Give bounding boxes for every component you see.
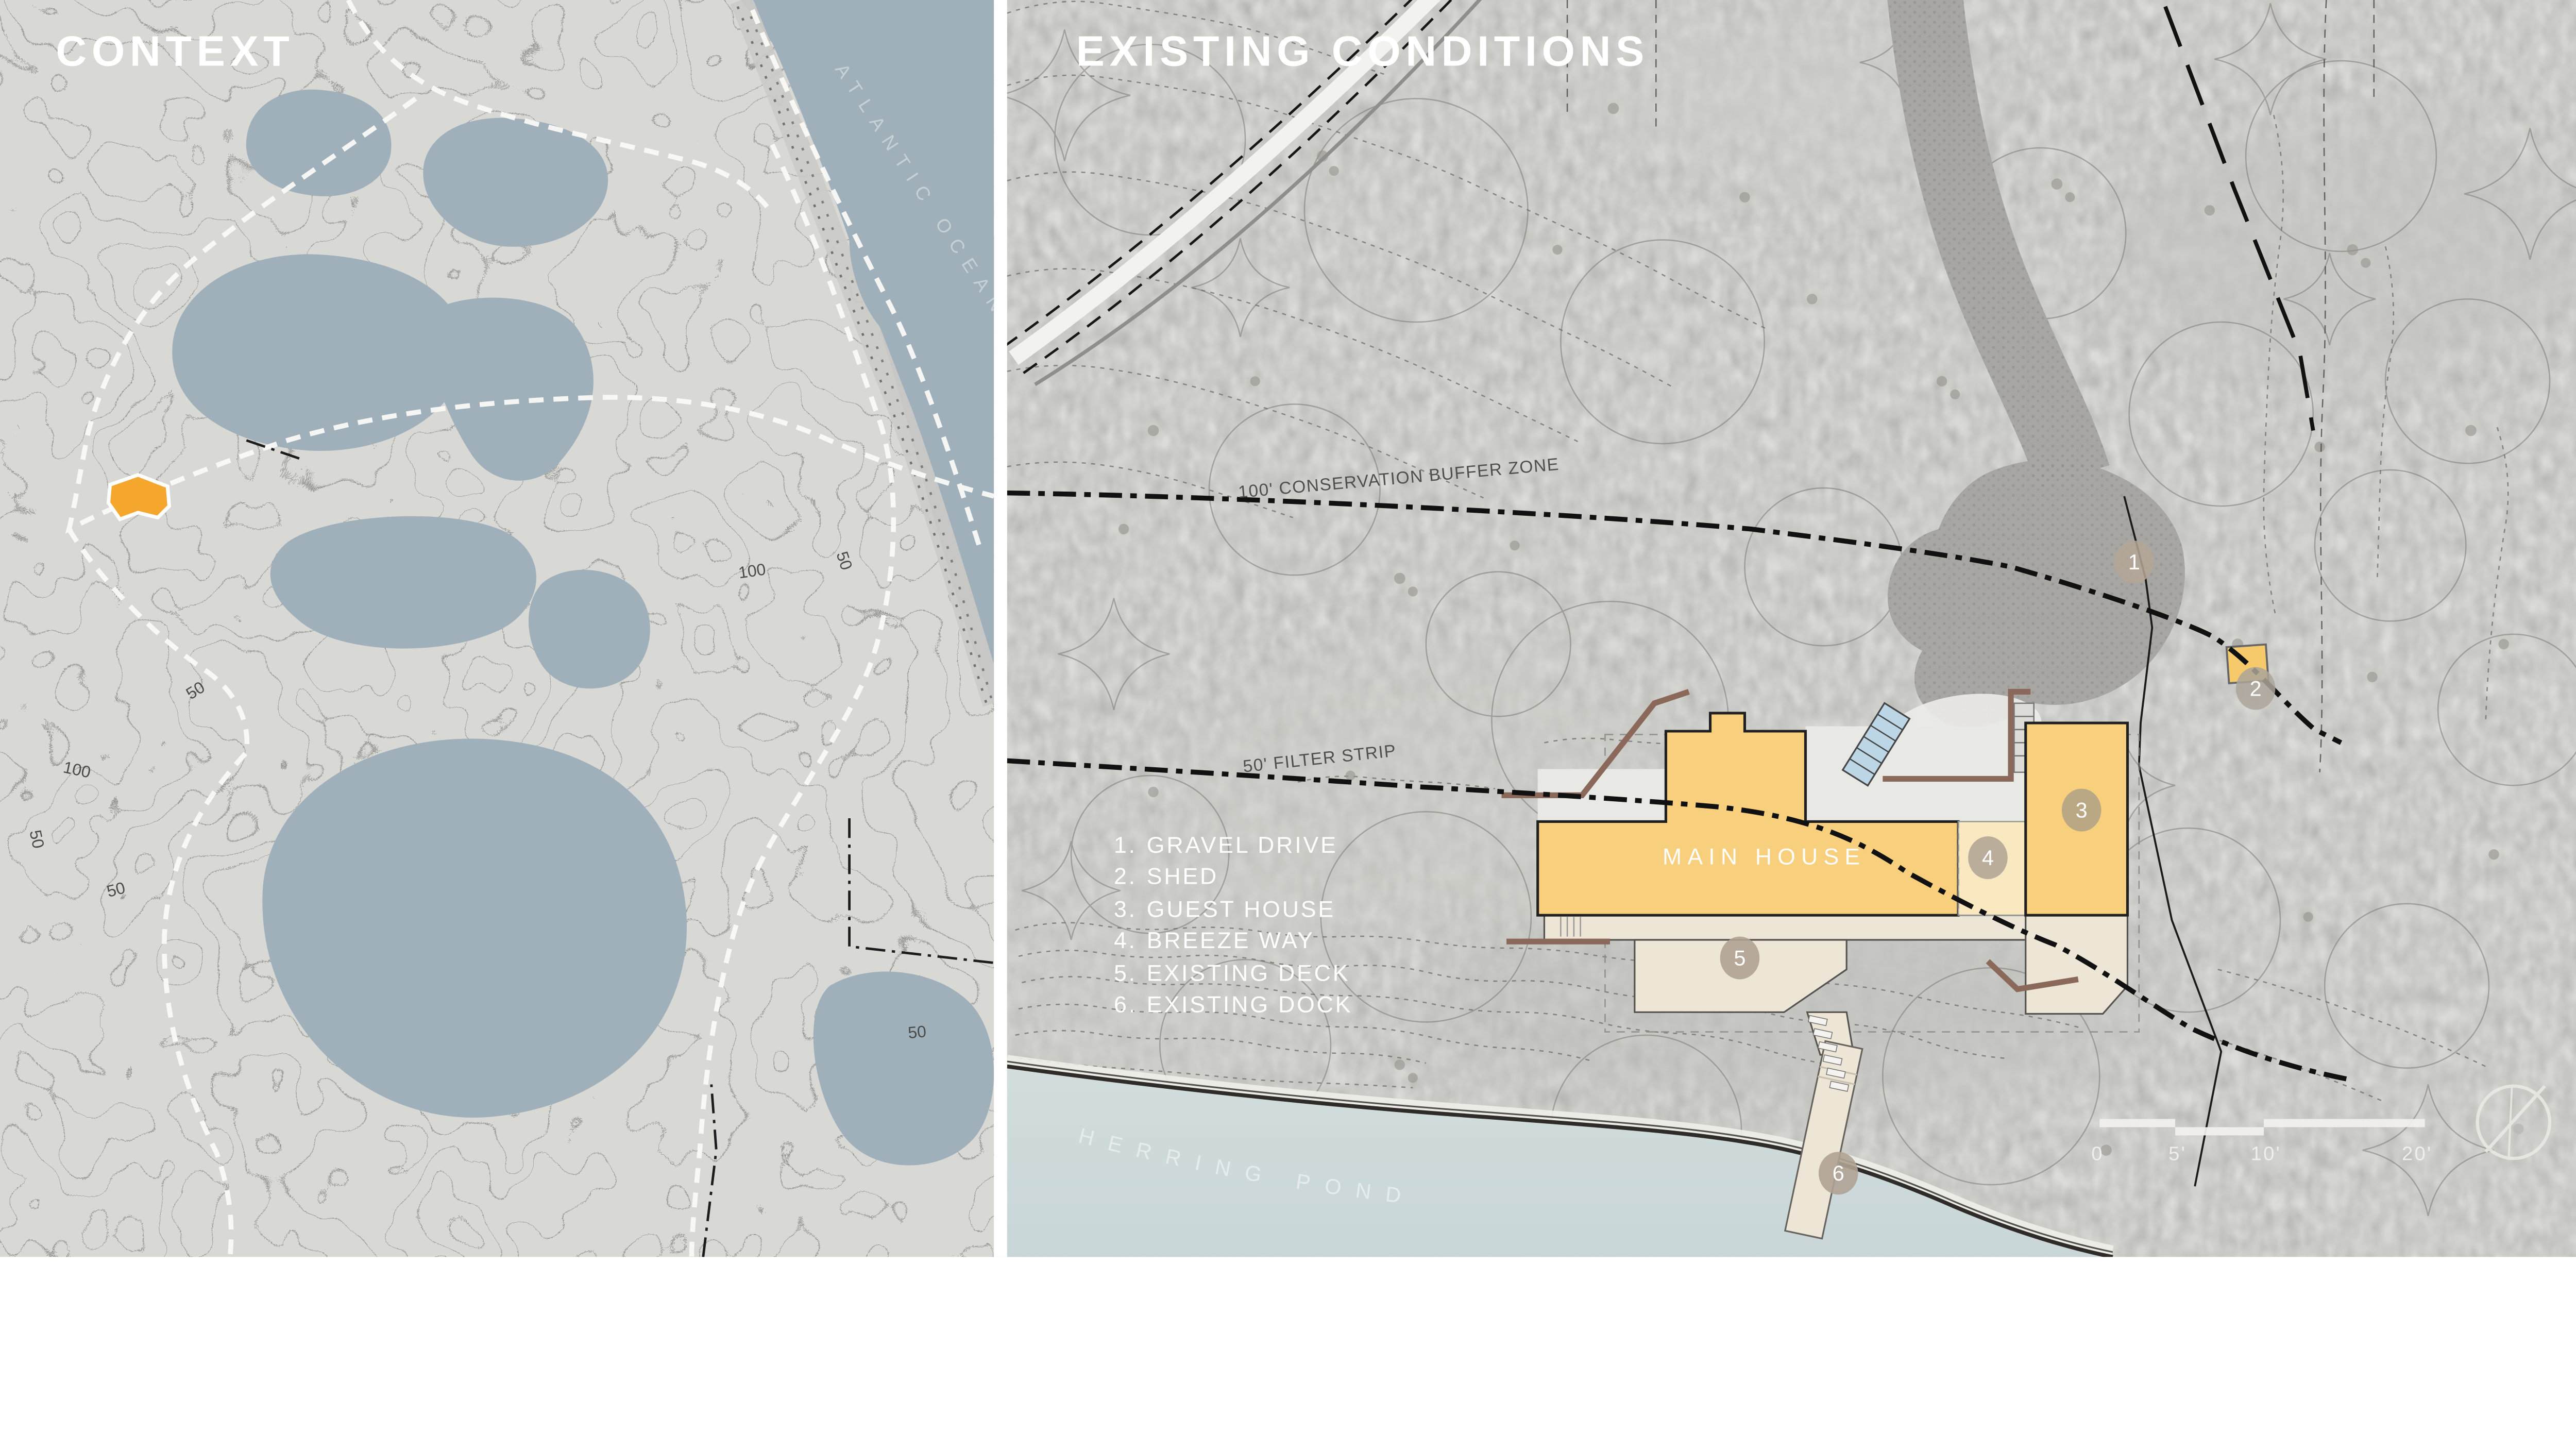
marker-breezeway: 4 xyxy=(1968,836,2008,879)
legend-label: BREEZE WAY xyxy=(1147,927,1315,953)
legend-number: 2. xyxy=(1114,862,1147,893)
svg-text:4: 4 xyxy=(1982,846,1994,870)
svg-text:6: 6 xyxy=(1833,1161,1844,1185)
svg-text:1: 1 xyxy=(2128,550,2140,574)
svg-text:5': 5' xyxy=(2168,1142,2187,1165)
site-plan-board: 100 50 100 50 50 50 50 ATLANTIC OCEAN xyxy=(0,0,2576,1257)
marker-existing-dock: 6 xyxy=(1819,1152,1858,1194)
legend-label: EXISTING DOCK xyxy=(1147,991,1353,1017)
svg-text:50: 50 xyxy=(907,1022,927,1042)
legend-label: GRAVEL DRIVE xyxy=(1147,832,1338,858)
legend-item-guest-house: 3.GUEST HOUSE xyxy=(1114,893,1352,925)
legend-number: 3. xyxy=(1114,893,1147,925)
legend-item-shed: 2.SHED xyxy=(1114,862,1352,893)
svg-text:100: 100 xyxy=(737,560,767,582)
svg-text:2: 2 xyxy=(2250,676,2262,700)
existing-panel-title: EXISTING CONDITIONS xyxy=(1076,26,1649,77)
legend-item-gravel-drive: 1.GRAVEL DRIVE xyxy=(1114,830,1352,862)
marker-shed: 2 xyxy=(2236,667,2276,710)
context-map-panel: 100 50 100 50 50 50 50 ATLANTIC OCEAN xyxy=(0,0,994,1257)
svg-text:20': 20' xyxy=(2402,1142,2432,1165)
legend-item-existing-dock: 6.EXISTING DOCK xyxy=(1114,989,1352,1021)
legend-item-existing-deck: 5.EXISTING DECK xyxy=(1114,957,1352,989)
svg-text:3: 3 xyxy=(2076,798,2088,822)
svg-text:10': 10' xyxy=(2251,1142,2281,1165)
main-house-label: MAIN HOUSE xyxy=(1663,844,1866,869)
svg-text:0: 0 xyxy=(2091,1142,2104,1165)
context-panel-title: CONTEXT xyxy=(56,26,294,77)
marker-guest-house: 3 xyxy=(2062,789,2102,832)
legend-number: 4. xyxy=(1114,925,1147,957)
existing-conditions-panel: HERRING POND xyxy=(1007,0,2576,1257)
legend-number: 6. xyxy=(1114,989,1147,1021)
svg-text:50: 50 xyxy=(26,828,48,850)
legend-label: EXISTING DECK xyxy=(1147,959,1350,985)
legend-label: SHED xyxy=(1147,863,1218,889)
marker-gravel-drive: 1 xyxy=(2114,541,2154,583)
legend-number: 5. xyxy=(1114,957,1147,989)
site-legend: 1.GRAVEL DRIVE 2.SHED 3.GUEST HOUSE 4.BR… xyxy=(1114,830,1352,1021)
legend-number: 1. xyxy=(1114,830,1147,862)
marker-existing-deck: 5 xyxy=(1720,937,1760,980)
legend-label: GUEST HOUSE xyxy=(1147,895,1335,921)
legend-item-breeze-way: 4.BREEZE WAY xyxy=(1114,925,1352,957)
svg-text:5: 5 xyxy=(1734,946,1745,970)
